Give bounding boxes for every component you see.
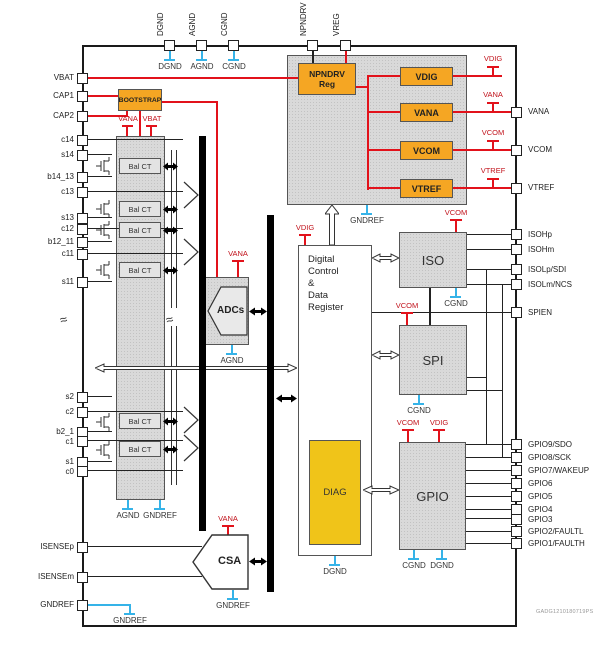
- figure-code: GADG1210180719PS: [536, 609, 593, 615]
- pin-gpio8: [511, 452, 522, 463]
- wire-isohm: [467, 249, 512, 250]
- vana-out-wire: [453, 111, 511, 113]
- pin-label-vreg: VREG: [333, 13, 341, 36]
- pin-gpio6: [511, 478, 522, 489]
- bal-ct-block: Bal CT: [119, 158, 161, 174]
- mosfet-icon: [96, 200, 112, 218]
- cell-gndref-stem: [159, 500, 161, 508]
- mosfet-icon: [96, 221, 112, 239]
- pin-label-gpio5: GPIO5: [528, 493, 552, 501]
- wire-b12_11: [88, 241, 112, 242]
- pin-isolp-sdi: [511, 264, 522, 275]
- pin-label-isolp-sdi: ISOLp/SDI: [528, 266, 566, 274]
- wire-isohp: [467, 234, 512, 235]
- pin-label-agnd-top: AGND: [189, 13, 197, 36]
- sdi-vertical-wire: [486, 269, 487, 445]
- pin-label-s2: s2: [22, 393, 74, 401]
- iso-cgnd-stem: [455, 288, 457, 296]
- iso-spi-wire: [429, 288, 431, 325]
- bootstrap-out-wire: [162, 101, 218, 103]
- pin-label-b2_1: b2_1: [22, 428, 74, 436]
- pin-isensep: [77, 542, 88, 553]
- pin-label-isensep: ISENSEp: [22, 543, 74, 551]
- digital-line-2: Control: [308, 266, 371, 278]
- csa-gndref-stem: [232, 590, 234, 598]
- adcs-vana-rail-stem: [237, 260, 239, 277]
- wire-c11: [88, 253, 183, 254]
- spi-ncs-stub: [467, 390, 503, 391]
- bal-ct-block: Bal CT: [119, 441, 161, 457]
- vtref-rail-label: VTREF: [471, 167, 515, 175]
- wire-spien: [372, 312, 511, 313]
- wire-isensep: [88, 546, 202, 547]
- spi-vcom-rail-stem: [406, 312, 408, 325]
- vcom-out-wire: [453, 149, 511, 151]
- gpio-block: GPIO: [399, 442, 466, 550]
- pin-c0: [77, 466, 88, 477]
- pin-label-c12: c12: [22, 225, 74, 233]
- digital-line-1: Digital: [308, 254, 371, 266]
- mosfet-icon: [96, 157, 112, 175]
- balct-bus-arrow: [163, 266, 178, 275]
- mosfet-icon: [96, 261, 112, 279]
- pin-label-vtref: VTREF: [528, 184, 554, 192]
- pin-label-s14: s14: [22, 151, 74, 159]
- vcom-branch: [367, 149, 400, 151]
- wire-gpio5: [466, 496, 512, 497]
- pin-gpio9: [511, 439, 522, 450]
- diag-gpio-arrow: [363, 485, 399, 495]
- wire-b14_13: [88, 176, 112, 177]
- agnd-ground-stem: [201, 51, 203, 59]
- npndrv-reg-block: NPNDRV Reg: [298, 63, 356, 95]
- gpio-vdig-rail-label: VDIG: [417, 419, 461, 427]
- vana-branch: [367, 111, 400, 113]
- reg-trunk-wire: [367, 76, 369, 190]
- mux-chevron: [183, 238, 199, 266]
- pin-c11: [77, 249, 88, 260]
- digital-dgnd-bar: [329, 564, 340, 566]
- vdig-rail-stem: [492, 66, 494, 76]
- pin-vbat: [77, 73, 88, 84]
- pin-c12: [77, 224, 88, 235]
- digital-dgnd-stem: [334, 556, 336, 564]
- wire-gpio4: [466, 509, 512, 510]
- pin-label-spien: SPIEN: [528, 309, 552, 317]
- pin-dgnd-top: [164, 40, 175, 51]
- wire-gpio9: [466, 444, 512, 445]
- pin-label-gndref: GNDREF: [22, 601, 74, 609]
- central-data-bus: [267, 215, 274, 592]
- npndrv-reg-line2: Reg: [319, 79, 335, 89]
- digital-dgnd-label: DGND: [313, 568, 357, 576]
- pin-vcom: [511, 145, 522, 156]
- digital-spi-arrow: [372, 350, 399, 360]
- csa-label: CSA: [218, 556, 241, 567]
- pin-label-isensem: ISENSEm: [22, 573, 74, 581]
- pin-s2: [77, 392, 88, 403]
- pin-agnd-top: [196, 40, 207, 51]
- mux-chevron: [183, 181, 199, 209]
- wire-isensem: [88, 576, 202, 577]
- cap1-wire: [88, 95, 118, 97]
- pin-vana: [511, 107, 522, 118]
- vana-rail-stem: [492, 102, 494, 112]
- pin-c1: [77, 436, 88, 447]
- bal-ct-block: Bal CT: [119, 413, 161, 429]
- vdig-out-wire: [453, 75, 502, 77]
- pin-label-vcom: VCOM: [528, 146, 552, 154]
- pin-label-gpio2: GPIO2/FAULTL: [528, 528, 583, 536]
- mux-chevron: [183, 434, 199, 462]
- pin-label-gpio9: GPIO9/SDO: [528, 441, 572, 449]
- wire-isolp-sdi: [467, 269, 512, 270]
- pin-label-isohp: ISOHp: [528, 231, 552, 239]
- wire-gpio1: [466, 543, 512, 544]
- iso-cgnd-bar: [450, 296, 461, 298]
- csa-gndref-label: GNDREF: [211, 602, 255, 610]
- adcs-agnd-bar: [226, 353, 237, 355]
- pin-vtref: [511, 183, 522, 194]
- vcom-rail-label: VCOM: [471, 129, 515, 137]
- block-diagram: DGND AGND CGND NPNDRV VREG DGND AGND CGN…: [0, 0, 611, 651]
- agnd-ground-bar: [196, 59, 207, 61]
- pin-label-gpio3: GPIO3: [528, 516, 552, 524]
- digital-vdig-rail-label: VDIG: [283, 224, 327, 232]
- wire-isolm-ncs: [467, 284, 512, 285]
- iso-vcom-rail-label: VCOM: [434, 209, 478, 217]
- pin-cap1: [77, 91, 88, 102]
- pin-label-s13: s13: [22, 214, 74, 222]
- digital-line-3: &: [308, 278, 371, 290]
- vdig-rail-label: VDIG: [471, 55, 515, 63]
- digital-vdig-rail-stem: [304, 234, 306, 245]
- pin-isolm-ncs: [511, 279, 522, 290]
- pin-label-c1: c1: [22, 438, 74, 446]
- gpio-dgnd-bar: [436, 558, 447, 560]
- mux-chevron: [183, 406, 199, 434]
- digital-line-5: Register: [308, 302, 371, 314]
- pin-label-c0: c0: [22, 468, 74, 476]
- pin-label-vbat: VBAT: [22, 74, 74, 82]
- pin-label-gpio7: GPIO7/WAKEUP: [528, 467, 589, 475]
- adcs-label: ADCs: [217, 306, 244, 316]
- wire-b2_1: [88, 431, 112, 432]
- cell-gndref-bar: [154, 508, 165, 510]
- iso-cgnd-label: CGND: [434, 300, 478, 308]
- cell-vbat-rail-stem: [150, 125, 152, 136]
- cell-agnd-bar: [122, 508, 133, 510]
- bal-ct-block: Bal CT: [119, 262, 161, 278]
- digital-line-4: Data: [308, 290, 371, 302]
- mosfet-icon: [96, 441, 112, 459]
- wire-c2: [88, 411, 183, 412]
- csa-gndref-bar: [227, 598, 238, 600]
- wire-s2: [88, 396, 112, 397]
- gpio-vcom-rail-stem: [407, 429, 409, 442]
- vana-ldo-block: VANA: [400, 103, 453, 122]
- pin-gndref: [77, 600, 88, 611]
- vdig-ldo-block: VDIG: [400, 67, 453, 86]
- dgnd-ground-stem: [169, 51, 171, 59]
- bootstrap-block: BOOTSTRAP: [118, 89, 162, 111]
- spi-cgnd-stem: [418, 395, 420, 403]
- diag-block: DIAG: [309, 440, 361, 545]
- vtref-rail-stem: [492, 178, 494, 188]
- pin-b12_11: [77, 237, 88, 248]
- pin-s13: [77, 213, 88, 224]
- adcs-vana-rail-label: VANA: [216, 250, 260, 258]
- pin-label-c14: c14: [22, 136, 74, 144]
- wire-gpio6: [466, 483, 512, 484]
- pin-label-s1: s1: [22, 458, 74, 466]
- pin-gpio2: [511, 526, 522, 537]
- pin-b14_13: [77, 172, 88, 183]
- pin-label-c11: c11: [22, 250, 74, 258]
- spi-sdi-stub: [467, 377, 487, 378]
- cgnd-ground-bar: [228, 59, 239, 61]
- wire-gpio2: [466, 531, 512, 532]
- dgnd-ground-bar: [164, 59, 175, 61]
- pin-gpio3: [511, 514, 522, 525]
- wire-c0: [88, 470, 183, 471]
- pin-label-isohm: ISOHm: [528, 246, 554, 254]
- vtref-ldo-block: VTREF: [400, 179, 453, 198]
- gpio-cgnd-stem: [413, 550, 415, 558]
- balct-bus-arrow: [163, 162, 178, 171]
- csa-vana-rail-label: VANA: [206, 515, 250, 523]
- pin-label-c13: c13: [22, 188, 74, 196]
- npndrv-reg-line1: NPNDRV: [309, 69, 345, 79]
- wire-s11: [88, 281, 112, 282]
- wire-c13: [88, 191, 183, 192]
- wire-gpio3: [466, 518, 512, 519]
- ncs-vertical-wire: [502, 284, 503, 458]
- pin-s11: [77, 277, 88, 288]
- pin-gpio1: [511, 538, 522, 549]
- pin-label-cap2: CAP2: [22, 112, 74, 120]
- digital-regulator-arrow: [325, 205, 339, 245]
- gndref-pin-wire: [88, 604, 131, 606]
- pin-isensem: [77, 572, 88, 583]
- iso-vcom-rail-stem: [455, 219, 457, 232]
- pin-label-isolm-ncs: ISOLm/NCS: [528, 281, 572, 289]
- spi-block: SPI: [399, 325, 467, 395]
- container-gndref-label: GNDREF: [345, 217, 389, 225]
- gndref-pin-stem: [129, 604, 131, 613]
- pin-gpio7: [511, 465, 522, 476]
- cell-vbat-rail-label: VBAT: [130, 115, 174, 123]
- vcom-ldo-block: VCOM: [400, 141, 453, 160]
- cgnd-ground-stem: [233, 51, 235, 59]
- pin-label-b12_11: b12_11: [22, 238, 74, 246]
- cell-vana-rail-stem: [126, 125, 128, 136]
- gndref-pin-bar: [124, 613, 135, 615]
- vtref-branch: [367, 187, 400, 189]
- vana-rail-label: VANA: [471, 91, 515, 99]
- gndref-pin-ground-label: GNDREF: [108, 617, 152, 625]
- stack-break-left: ≈: [58, 311, 69, 327]
- gpio-vdig-rail-stem: [438, 429, 440, 442]
- vdig-branch: [367, 75, 400, 77]
- pin-label-dgnd-top: DGND: [157, 12, 165, 36]
- spi-cgnd-bar: [413, 403, 424, 405]
- gpio-dgnd-label: DGND: [420, 562, 464, 570]
- pin-cap2: [77, 111, 88, 122]
- pin-label-b14_13: b14_13: [22, 173, 74, 181]
- cgnd-ground-label: CGND: [212, 63, 256, 71]
- pin-vreg: [340, 40, 351, 51]
- bus-digital-arrow: [276, 394, 297, 403]
- spi-cgnd-label: CGND: [397, 407, 441, 415]
- adcs-bus-arrow: [249, 307, 267, 316]
- csa-bus-arrow: [249, 557, 267, 566]
- iso-block: ISO: [399, 232, 467, 288]
- wire-s1: [88, 461, 112, 462]
- pin-gpio5: [511, 491, 522, 502]
- container-gndref-stem: [366, 205, 368, 213]
- pin-label-gpio6: GPIO6: [528, 480, 552, 488]
- pin-label-gpio1: GPIO1/FAULTH: [528, 540, 585, 548]
- mosfet-icon: [96, 413, 112, 431]
- pin-c14: [77, 135, 88, 146]
- pin-label-s11: s11: [22, 278, 74, 286]
- pin-npndrv: [307, 40, 318, 51]
- pin-label-cap1: CAP1: [22, 92, 74, 100]
- wire-s14: [88, 154, 112, 155]
- pin-c13: [77, 187, 88, 198]
- pin-label-c2: c2: [22, 408, 74, 416]
- wire-gpio7: [466, 470, 512, 471]
- balct-bus-arrow: [163, 205, 178, 214]
- pin-label-gpio4: GPIO4: [528, 506, 552, 514]
- pin-s14: [77, 150, 88, 161]
- pin-isohp: [511, 229, 522, 240]
- balct-bus-arrow: [163, 226, 178, 235]
- spi-vcom-rail-label: VCOM: [385, 302, 429, 310]
- pin-label-vana: VANA: [528, 108, 549, 116]
- adc-input-bus: [199, 136, 206, 531]
- pin-label-gpio8: GPIO8/SCK: [528, 454, 571, 462]
- pin-label-npndrv: NPNDRV: [300, 2, 308, 36]
- cell-agnd-stem: [127, 500, 129, 508]
- wire-c14: [88, 139, 183, 140]
- bal-ct-block: Bal CT: [119, 201, 161, 217]
- wire-gpio8: [466, 457, 512, 458]
- vcom-rail-stem: [492, 140, 494, 150]
- adcs-agnd-label: AGND: [210, 357, 254, 365]
- vtref-out-wire: [453, 187, 511, 189]
- pin-c2: [77, 407, 88, 418]
- vbat-wire: [88, 77, 298, 79]
- gpio-dgnd-stem: [441, 550, 443, 558]
- container-gndref-bar: [361, 213, 372, 215]
- pin-cgnd-top: [228, 40, 239, 51]
- balct-bus-arrow: [163, 445, 178, 454]
- npndrv-pin-wire: [312, 51, 314, 63]
- bal-ct-block: Bal CT: [119, 222, 161, 238]
- cell-gndref-label: GNDREF: [138, 512, 182, 520]
- digital-iso-arrow: [372, 253, 399, 263]
- gpio-cgnd-bar: [408, 558, 419, 560]
- adcs-agnd-stem: [231, 345, 233, 353]
- balct-bus-arrow: [163, 417, 178, 426]
- pin-label-cgnd-top: CGND: [221, 12, 229, 36]
- pin-spien: [511, 307, 522, 318]
- pin-isohm: [511, 244, 522, 255]
